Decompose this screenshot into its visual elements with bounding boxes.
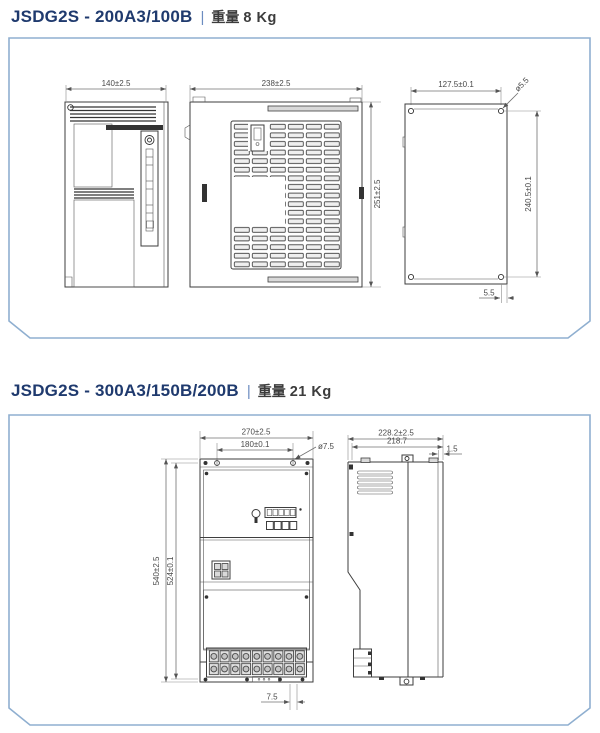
- title-separator: |: [200, 9, 204, 26]
- dim-front-hole-pitch-w: 180±0.1: [241, 440, 270, 449]
- dim-plate-hole-dia: ø5.5: [513, 75, 531, 93]
- weight-label: 重量: [258, 381, 286, 401]
- section2-drawing-panel: 270±2.5 180±0.1 ø7.5 540±2.5 524±0.1: [0, 414, 600, 727]
- dim-front-width: 140±2.5: [102, 79, 131, 88]
- panel-border: [9, 415, 590, 725]
- dim-side-depth-inner: 218.7: [387, 437, 408, 446]
- weight-value: 21 Kg: [290, 384, 332, 400]
- dim-plate-hole-pitch-h: 240.5±0.1: [524, 176, 533, 212]
- model-number: JSDG2S - 300A3/150B/200B: [11, 381, 239, 401]
- mounting-plate-drawing: 127.5±0.1 ø5.5 240.5±0.1 5.5: [403, 75, 541, 303]
- model-number: JSDG2S - 200A3/100B: [11, 7, 192, 27]
- weight-label: 重量: [211, 7, 239, 27]
- side-view-drawing: 228.2±2.5 218.7 1.5: [348, 429, 462, 686]
- dim-front-width: 270±2.5: [242, 428, 271, 437]
- dim-side-width: 238±2.5: [262, 79, 291, 88]
- weight-value: 8 Kg: [243, 10, 276, 26]
- dim-front-height: 540±2.5: [152, 556, 161, 585]
- section2-title: JSDG2S - 300A3/150B/200B | 重量 21 Kg: [11, 381, 332, 401]
- dim-front-bottom-offset: 7.5: [266, 693, 278, 702]
- dim-front-hole-pitch-h: 524±0.1: [166, 556, 175, 585]
- dim-front-hole-dia: ø7.5: [318, 442, 335, 451]
- front-view-drawing: 270±2.5 180±0.1 ø7.5 540±2.5 524±0.1: [152, 428, 335, 711]
- section1-drawing-panel: 140±2.5 238±2.: [0, 37, 600, 340]
- section1-title: JSDG2S - 200A3/100B | 重量 8 Kg: [11, 7, 277, 27]
- dim-side-flange: 1.5: [446, 445, 458, 454]
- title-separator: |: [247, 383, 251, 400]
- datasheet-page: { "page": { "panel_border_color": "#8faf…: [0, 0, 600, 733]
- front-view-drawing: 140±2.5: [65, 79, 168, 287]
- side-view-drawing: 238±2.5 251±2.5: [185, 79, 382, 287]
- dim-plate-edge-offset: 5.5: [483, 289, 495, 298]
- dim-plate-hole-pitch-w: 127.5±0.1: [438, 80, 474, 89]
- dim-side-height: 251±2.5: [373, 179, 382, 208]
